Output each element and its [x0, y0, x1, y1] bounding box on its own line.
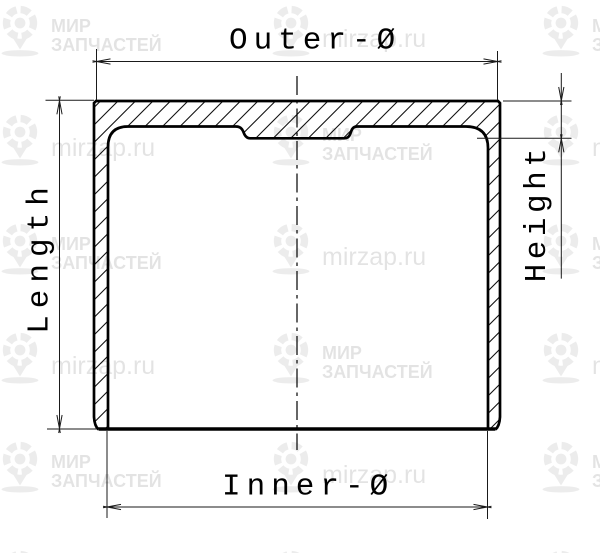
svg-text:mirzap.ru: mirzap.ru: [322, 461, 426, 489]
svg-text:МИР: МИР: [592, 234, 600, 254]
svg-text:МИР: МИР: [322, 343, 362, 363]
svg-text:МИР: МИР: [322, 125, 362, 145]
svg-text:ЗАПЧАСТЕЙ: ЗАПЧАСТЕЙ: [592, 34, 600, 55]
svg-text:ЗАПЧАСТЕЙ: ЗАПЧАСТЕЙ: [322, 143, 433, 164]
svg-text:mirzap.ru: mirzap.ru: [592, 352, 600, 380]
svg-text:МИР: МИР: [592, 452, 600, 472]
svg-text:ЗАПЧАСТЕЙ: ЗАПЧАСТЕЙ: [51, 34, 162, 55]
svg-text:ЗАПЧАСТЕЙ: ЗАПЧАСТЕЙ: [51, 470, 162, 491]
svg-text:МИР: МИР: [592, 16, 600, 36]
svg-text:МИР: МИР: [51, 452, 91, 472]
svg-text:mirzap.ru: mirzap.ru: [592, 134, 600, 162]
svg-text:mirzap.ru: mirzap.ru: [322, 243, 426, 271]
svg-text:МИР: МИР: [51, 234, 91, 254]
svg-text:mirzap.ru: mirzap.ru: [51, 134, 155, 162]
svg-text:mirzap.ru: mirzap.ru: [322, 25, 426, 53]
svg-text:ЗАПЧАСТЕЙ: ЗАПЧАСТЕЙ: [592, 252, 600, 273]
svg-text:МИР: МИР: [51, 16, 91, 36]
svg-text:mirzap.ru: mirzap.ru: [51, 352, 155, 380]
svg-text:ЗАПЧАСТЕЙ: ЗАПЧАСТЕЙ: [592, 470, 600, 491]
svg-text:ЗАПЧАСТЕЙ: ЗАПЧАСТЕЙ: [322, 361, 433, 382]
svg-text:ЗАПЧАСТЕЙ: ЗАПЧАСТЕЙ: [51, 252, 162, 273]
